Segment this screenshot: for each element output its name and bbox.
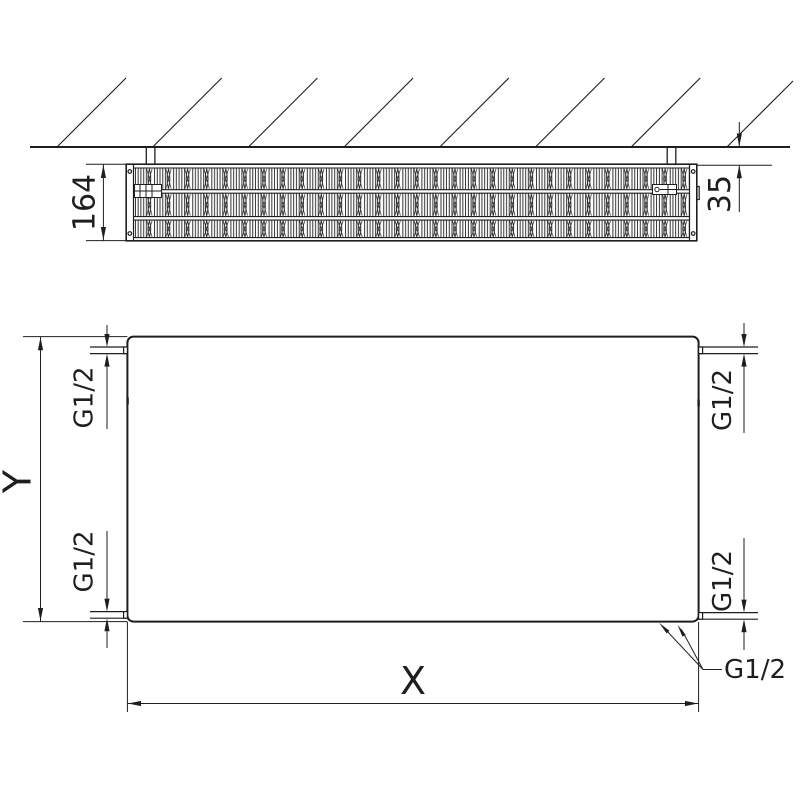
end-cap-right [690,164,700,241]
edge-tab-left [126,398,128,405]
edge-tab-right [697,400,699,407]
connection-stub-bottom-left [90,612,127,619]
wall-hatching [57,78,793,147]
width-dimension-label: X [400,659,426,703]
fin-pattern-row-top [134,168,690,190]
wall-clearance-label: 35 [703,175,738,213]
technical-drawing-canvas: 164 35 [0,0,800,800]
bracket-hook-left [135,185,162,198]
connection-stub-bottom-right [699,613,758,620]
end-cap-left [128,164,134,241]
thread-dim-bottom-right: G1/2 [708,538,747,650]
thread-label-bottom-leader: G1/2 [724,655,786,685]
radiator-technical-drawing: 164 35 [0,0,800,800]
radiator-front-view [90,337,758,622]
wall-brackets [146,147,676,164]
thread-label-bottom-right: G1/2 [708,550,738,612]
thread-label-bottom-left: G1/2 [70,531,100,593]
connection-stub-top-left [90,347,127,354]
thread-label-top-right: G1/2 [708,369,738,431]
thread-label-top-left: G1/2 [70,367,100,429]
depth-dimension-label: 164 [68,174,103,231]
front-panel-outline [127,337,698,622]
fin-pattern-row-middle [134,193,690,216]
radiator-cross-section [126,164,699,241]
height-dimension-label: Y [0,469,40,494]
thread-dim-top-left: G1/2 [70,325,110,429]
thread-dim-top-right: G1/2 [708,323,747,433]
fin-pattern-row-bottom [134,220,690,238]
bracket-hook-right [653,185,677,195]
wall-bracket-left [146,147,155,164]
dimension-depth-164: 164 [68,164,128,240]
dimension-width-x: X [127,622,698,712]
dimension-wall-clearance-35: 35 [696,122,772,213]
connection-stub-top-right [699,347,758,354]
thread-leader-bottom: G1/2 [659,623,786,685]
wall-section [30,78,793,147]
thread-dim-bottom-left: G1/2 [70,531,110,649]
dimension-height-y: Y [0,337,127,622]
wall-bracket-right [667,147,676,164]
